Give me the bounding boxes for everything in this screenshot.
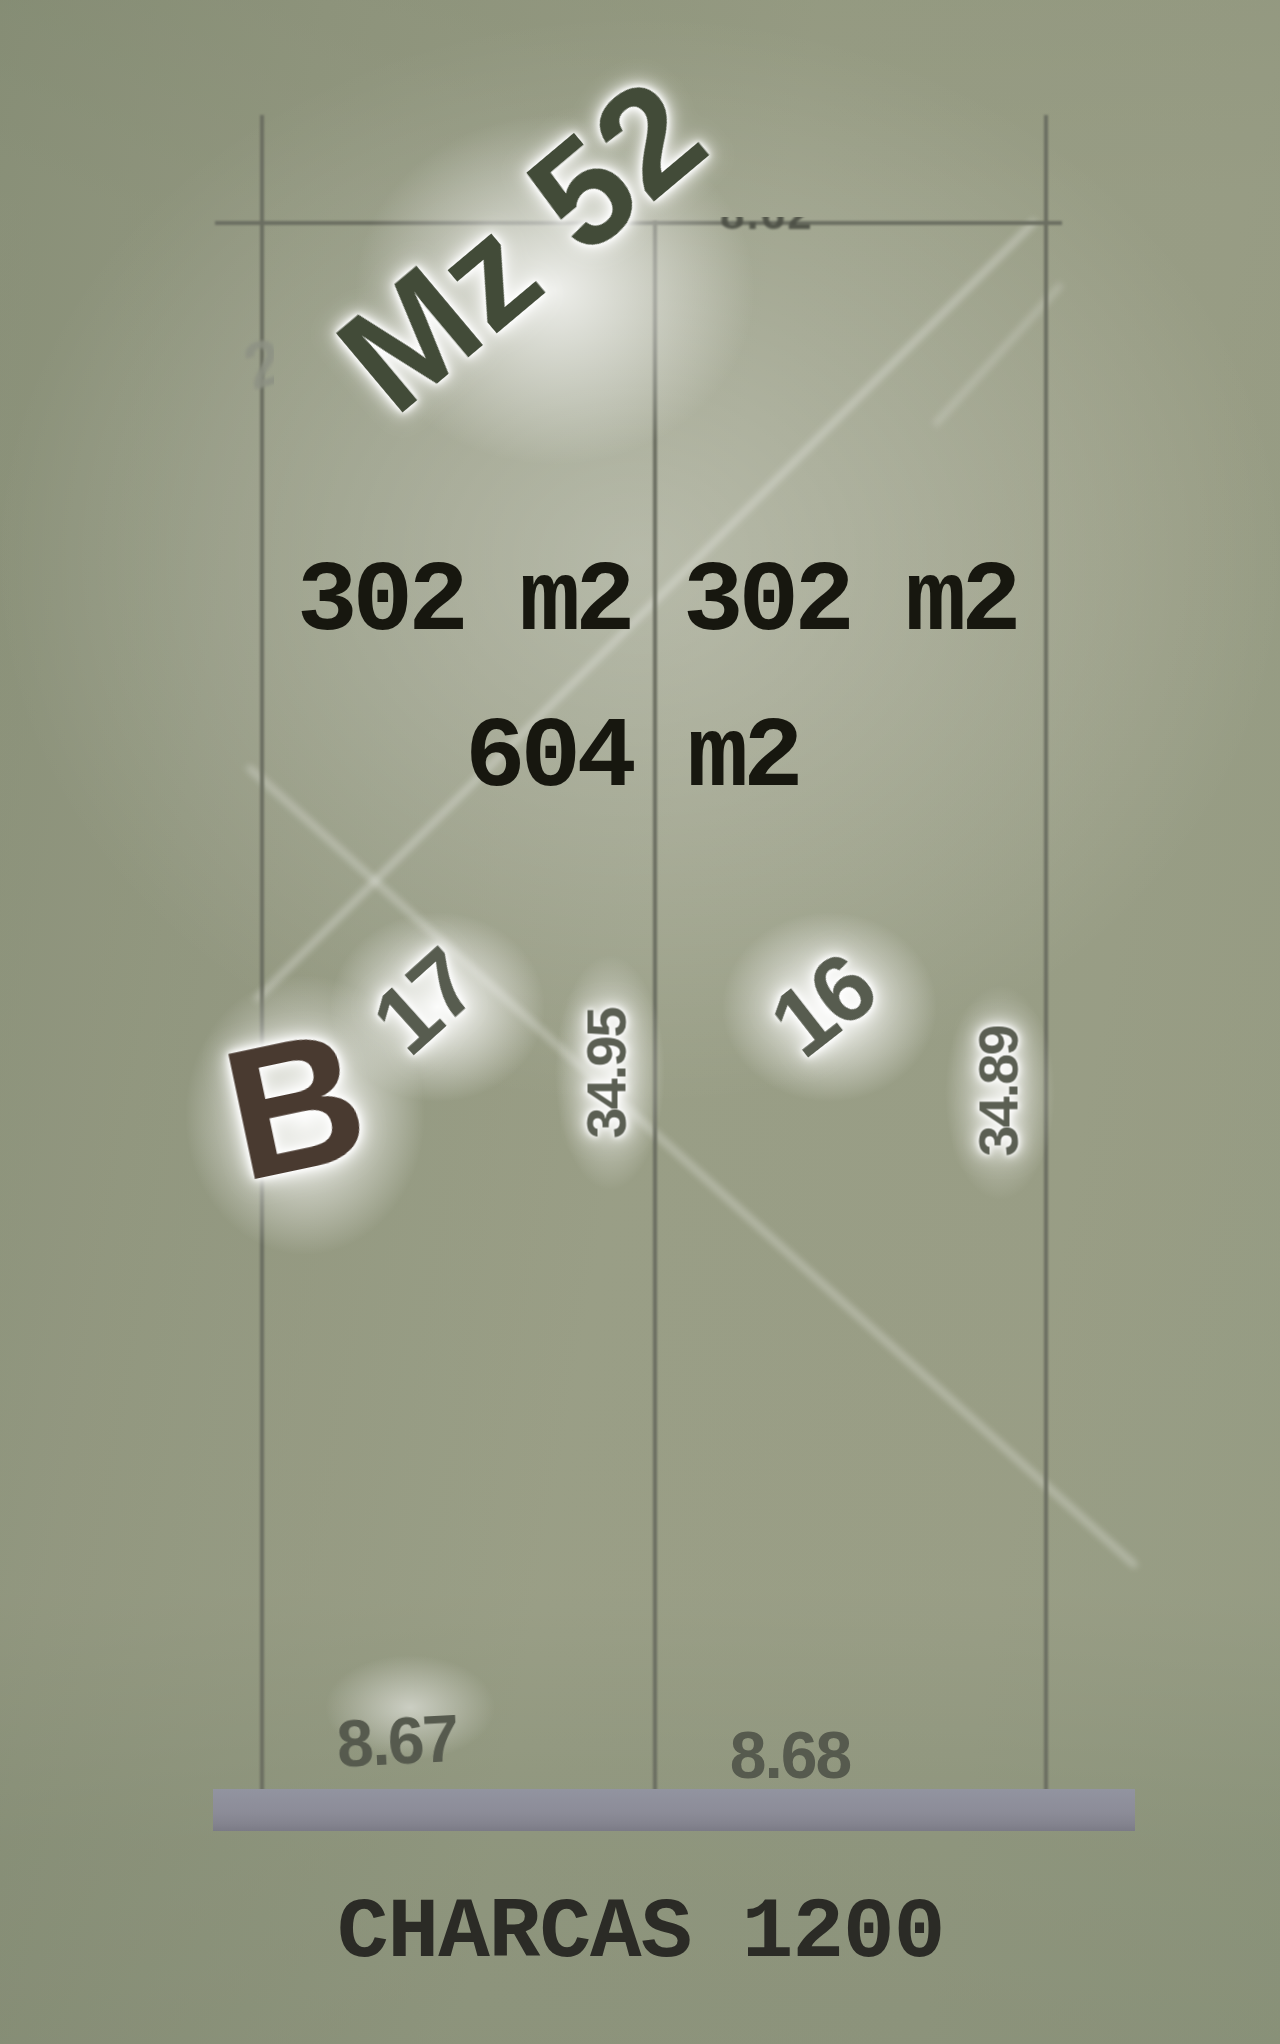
rear-measure-fragment: 8.62 bbox=[720, 217, 855, 234]
clipped-digit-fragment: 2 bbox=[240, 330, 274, 415]
lot-16-depth: 34.89 bbox=[966, 1022, 1031, 1162]
lot-16-area: 302 m2 bbox=[683, 552, 1017, 653]
lot-16-number: 16 bbox=[754, 938, 889, 1073]
boundary-line-middle bbox=[653, 221, 657, 1791]
light-streak-diagonal-right bbox=[246, 765, 1138, 1569]
boundary-line-right bbox=[1044, 115, 1048, 1791]
lot-17-area: 302 m2 bbox=[297, 552, 631, 653]
zone-letter: B bbox=[210, 1000, 380, 1210]
lot-17-frontage: 8.67 bbox=[321, 1699, 473, 1783]
lot-16-frontage: 8.68 bbox=[716, 1717, 864, 1793]
block-label: Mz 52 bbox=[313, 53, 730, 437]
lot-17-depth: 34.95 bbox=[574, 1004, 639, 1144]
lot-17-number: 17 bbox=[356, 935, 492, 1071]
street-label: CHARCAS 1200 bbox=[337, 1890, 944, 1976]
cadastral-plot-map: 8.62 2 Mz 52 B 17 16 302 m2 302 m2 604 m… bbox=[0, 0, 1280, 2044]
total-area: 604 m2 bbox=[465, 708, 799, 809]
street-bar bbox=[213, 1789, 1135, 1831]
